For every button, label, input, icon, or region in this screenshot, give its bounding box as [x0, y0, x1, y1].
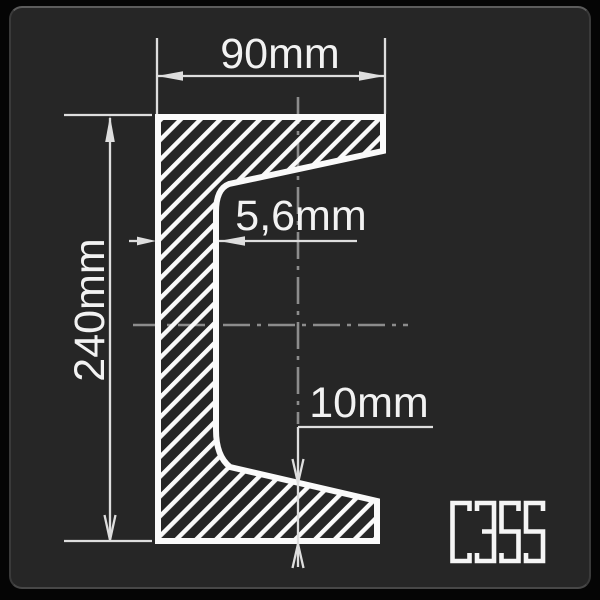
- grade-glyph-C: [453, 503, 470, 561]
- dim-height: 240mm: [64, 115, 152, 541]
- dim-width: 90mm: [157, 30, 385, 114]
- dim-web-thickness-label: 5,6mm: [235, 192, 366, 240]
- arrowhead-right-icon: [359, 71, 385, 81]
- dim-flange-thickness-label: 10mm: [309, 379, 428, 427]
- arrowhead-left-icon: [157, 71, 183, 81]
- arrowhead-up-icon: [105, 116, 115, 142]
- steel-grade-text: C355: [428, 497, 567, 562]
- page-background: 90mm 240mm 5,6mm 10mm: [0, 0, 600, 600]
- dim-height-label: 240mm: [66, 238, 114, 381]
- dim-width-label: 90mm: [220, 30, 339, 78]
- steel-grade-label: C355: [428, 497, 567, 562]
- channel-profile-section: [158, 117, 383, 541]
- grade-glyph-5b: [526, 503, 543, 561]
- technical-drawing: 90mm 240mm 5,6mm 10mm: [0, 0, 600, 600]
- grade-glyph-5: [502, 503, 519, 561]
- grade-glyph-3: [477, 503, 494, 561]
- arrowhead-right-icon: [137, 237, 156, 246]
